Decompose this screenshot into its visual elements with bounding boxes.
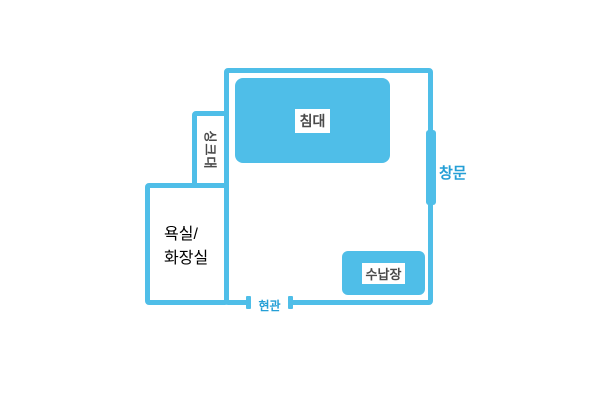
window-marker xyxy=(426,130,436,205)
bathroom-outline: 욕실/ 화장실 xyxy=(145,183,229,305)
entrance-label: 현관 xyxy=(251,297,288,314)
bathroom-label: 욕실/ 화장실 xyxy=(150,188,224,300)
bed-label: 침대 xyxy=(295,109,331,133)
storage-label: 수납장 xyxy=(362,263,406,284)
bathroom-label-line1: 욕실/ xyxy=(164,220,210,244)
entrance-door-cap-right xyxy=(288,296,293,309)
bed: 침대 xyxy=(235,78,390,163)
sink-label: 싱크대 xyxy=(201,130,220,169)
window-label: 창문 xyxy=(439,162,467,183)
storage-cabinet: 수납장 xyxy=(342,251,425,295)
sink-room-outline: 싱크대 xyxy=(192,111,229,188)
floorplan-canvas: 침대 수납장 싱크대 욕실/ 화장실 창문 현관 xyxy=(0,0,600,400)
bathroom-label-line2: 화장실 xyxy=(164,244,210,268)
